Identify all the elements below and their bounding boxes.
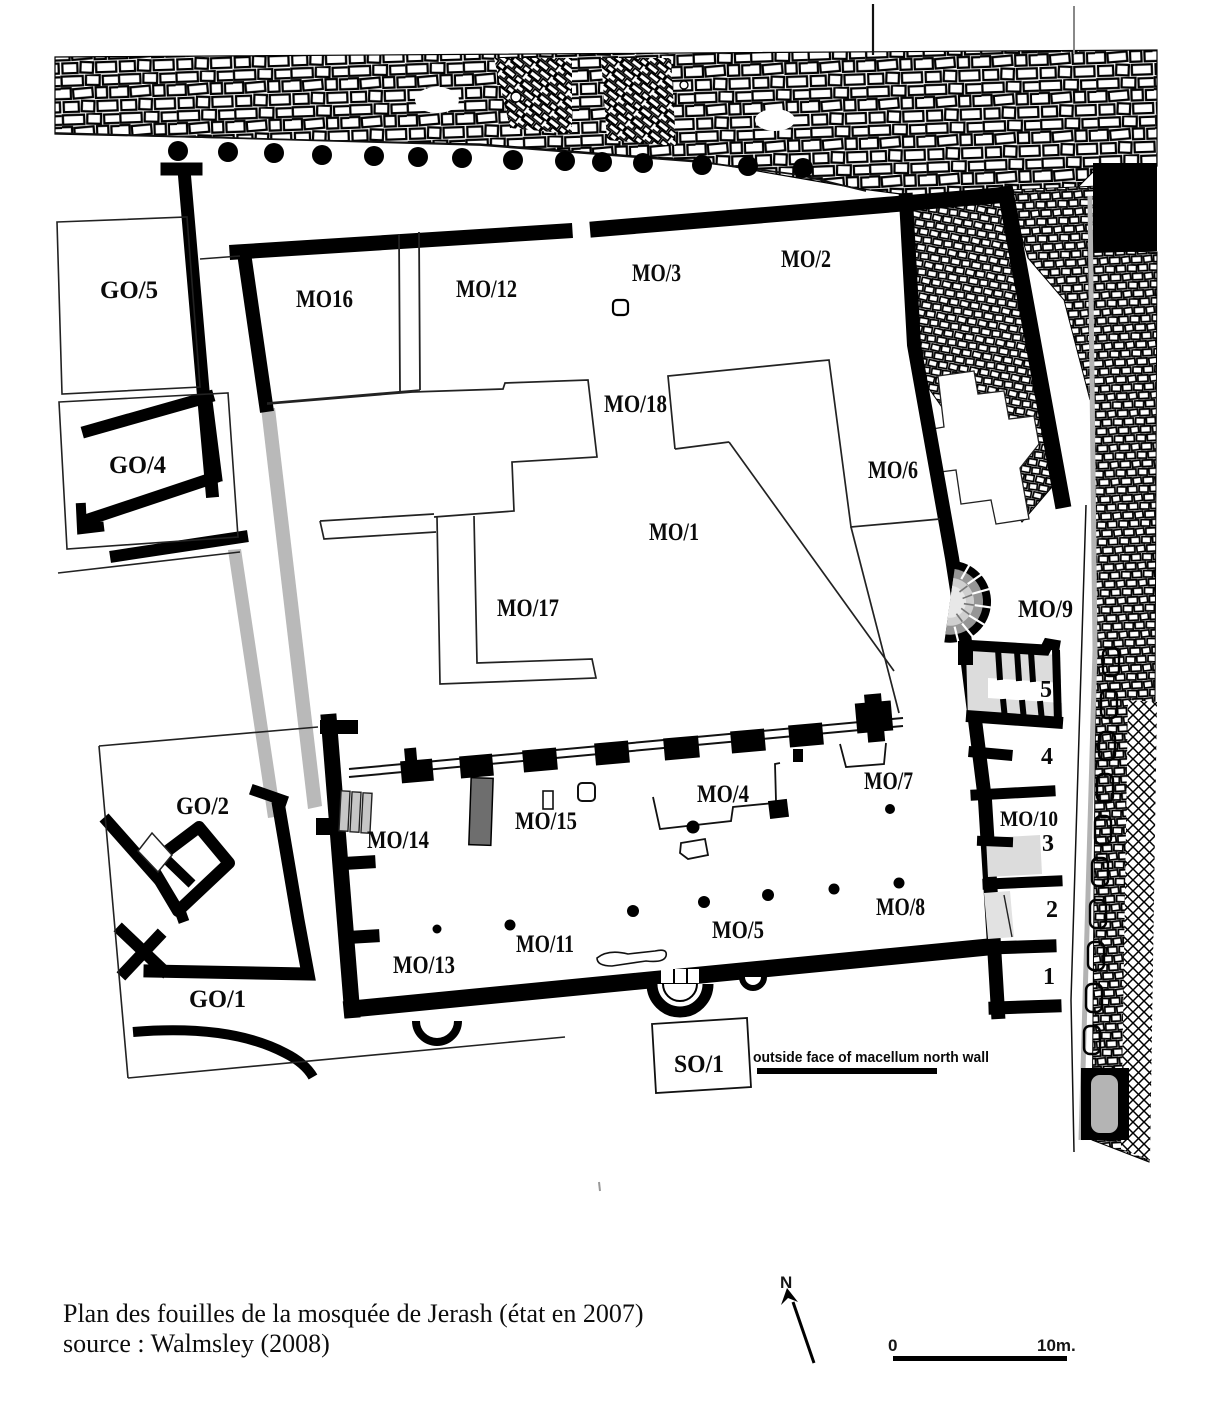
svg-text:MO/7: MO/7 (864, 768, 913, 795)
svg-text:MO/17: MO/17 (497, 595, 559, 622)
svg-text:MO/8: MO/8 (876, 894, 925, 921)
svg-text:MO/14: MO/14 (367, 827, 429, 854)
svg-text:GO/1: GO/1 (189, 986, 246, 1013)
svg-text:MO/4: MO/4 (697, 781, 749, 808)
svg-text:MO/10: MO/10 (1000, 806, 1058, 831)
svg-text:MO/3: MO/3 (632, 260, 681, 287)
svg-text:MO/1: MO/1 (649, 519, 699, 546)
svg-text:GO/2: GO/2 (176, 793, 229, 820)
svg-text:MO/18: MO/18 (604, 391, 667, 418)
svg-text:MO/12: MO/12 (456, 276, 517, 303)
svg-text:MO16: MO16 (296, 286, 353, 313)
svg-text:MO/11: MO/11 (516, 931, 574, 958)
svg-text:GO/5: GO/5 (100, 277, 158, 304)
svg-text:MO/2: MO/2 (781, 246, 831, 273)
svg-text:2: 2 (1046, 897, 1058, 923)
svg-text:GO/4: GO/4 (109, 452, 166, 479)
svg-text:N: N (780, 1273, 792, 1292)
svg-text:5: 5 (1040, 677, 1052, 703)
svg-text:MO/9: MO/9 (1018, 596, 1073, 623)
svg-text:MO/13: MO/13 (393, 952, 455, 979)
svg-text:1: 1 (1043, 964, 1055, 990)
svg-text:4: 4 (1041, 744, 1053, 770)
svg-text:0: 0 (888, 1336, 897, 1355)
svg-text:outside face of macellum north: outside face of macellum north wall (753, 1049, 989, 1066)
svg-text:3: 3 (1042, 831, 1054, 857)
svg-text:SO/1: SO/1 (674, 1051, 724, 1078)
svg-text:MO/15: MO/15 (515, 808, 577, 835)
svg-text:MO/6: MO/6 (868, 457, 918, 484)
svg-text:source : Walmsley (2008): source : Walmsley (2008) (63, 1329, 330, 1358)
svg-text:MO/5: MO/5 (712, 917, 764, 944)
svg-text:10m.: 10m. (1037, 1336, 1076, 1355)
svg-text:Plan des fouilles de la mosqué: Plan des fouilles de la mosquée de Jeras… (63, 1299, 644, 1328)
